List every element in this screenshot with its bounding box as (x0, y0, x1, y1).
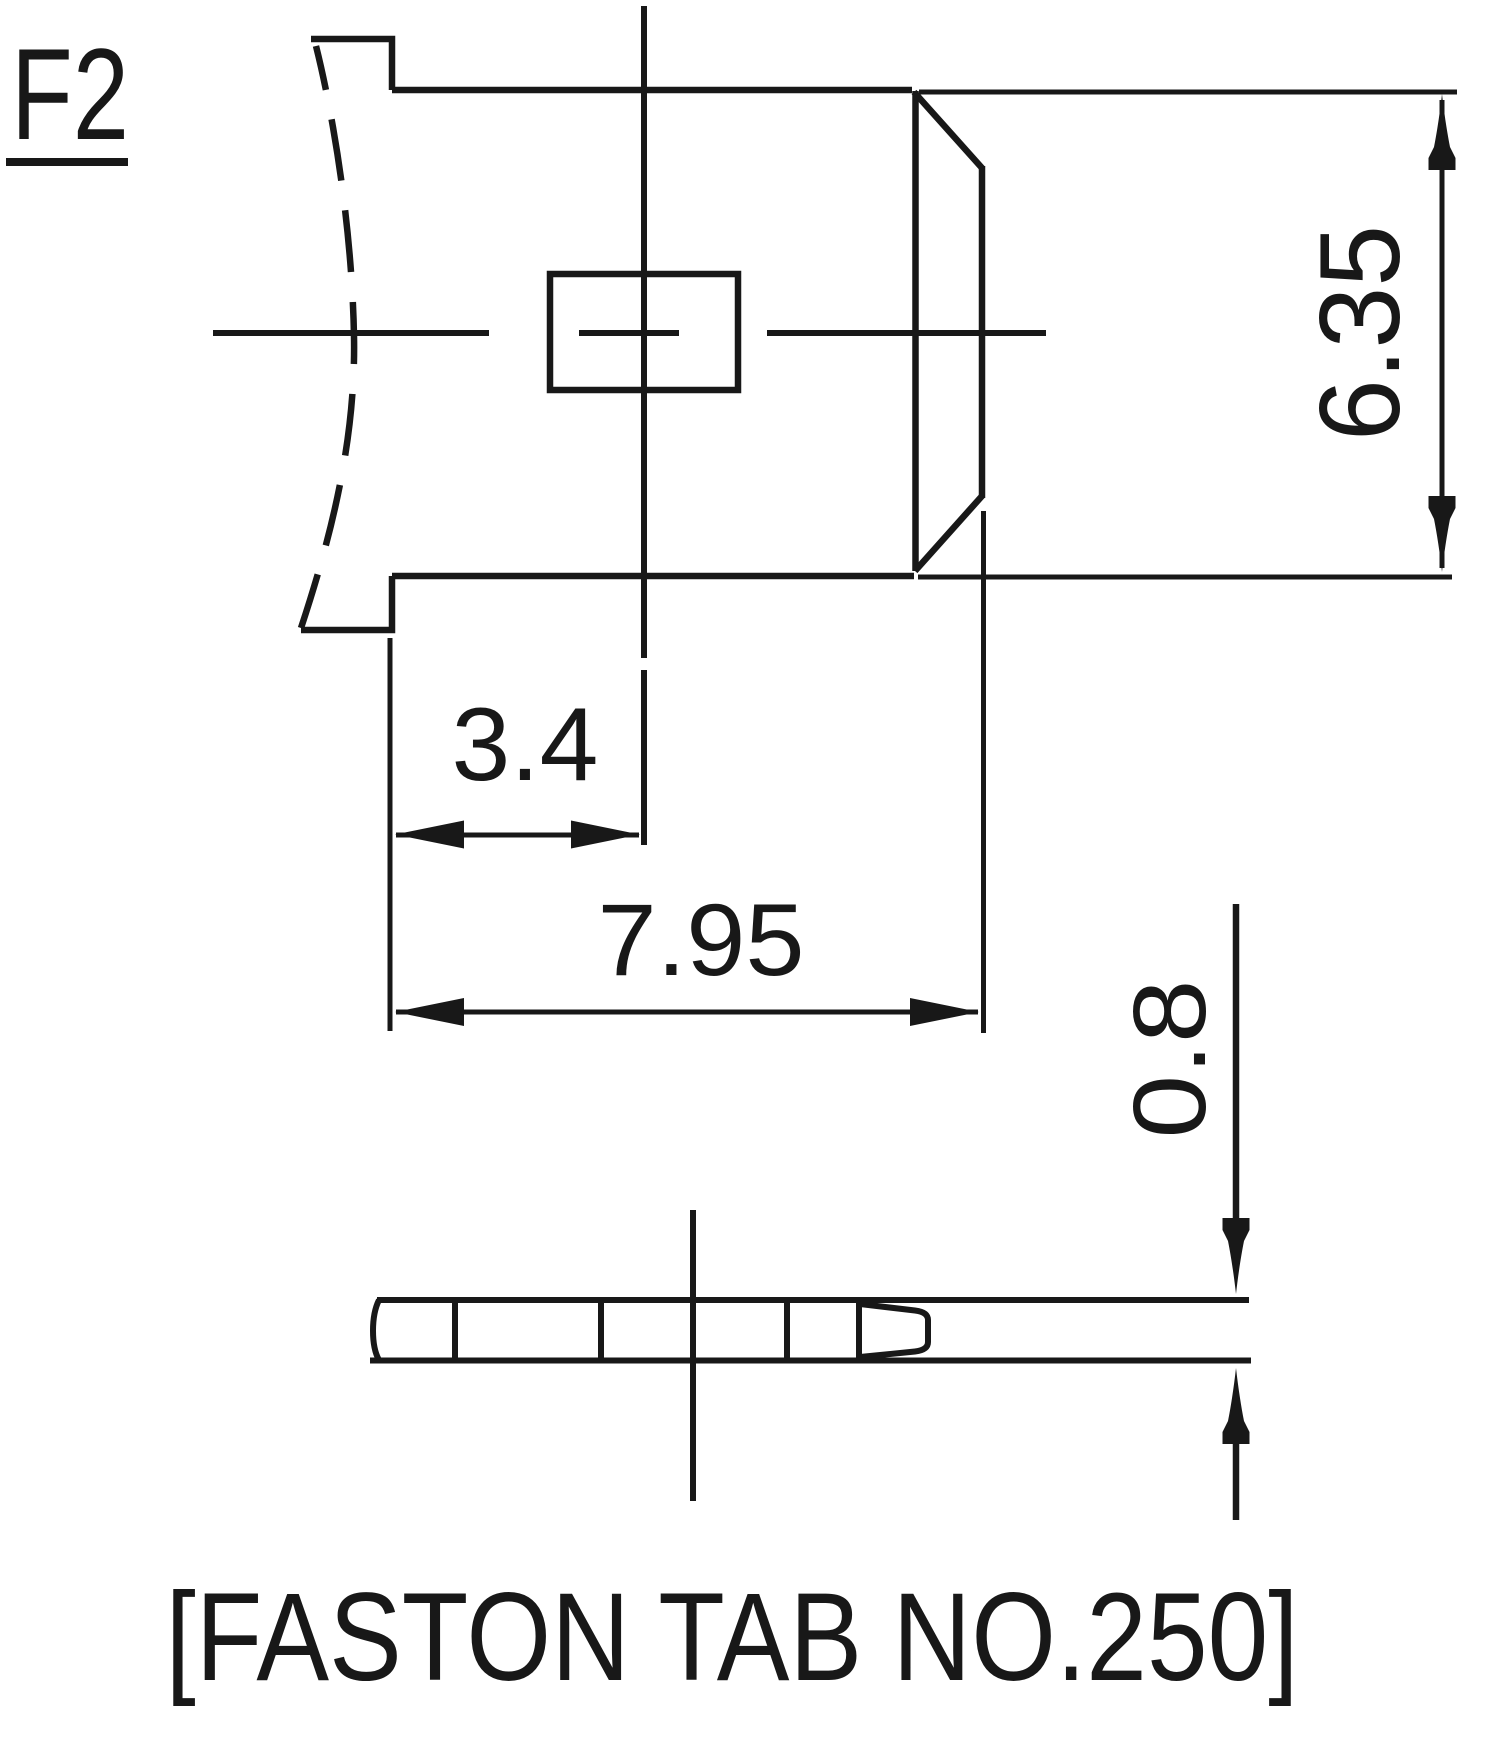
svg-text:F2: F2 (11, 21, 129, 167)
svg-text:6.35: 6.35 (1297, 225, 1424, 441)
svg-text:0.8: 0.8 (1112, 980, 1227, 1139)
svg-text:[FASTON TAB NO.250]: [FASTON TAB NO.250] (166, 1568, 1299, 1707)
svg-text:3.4: 3.4 (452, 687, 599, 803)
svg-text:7.95: 7.95 (598, 883, 805, 997)
